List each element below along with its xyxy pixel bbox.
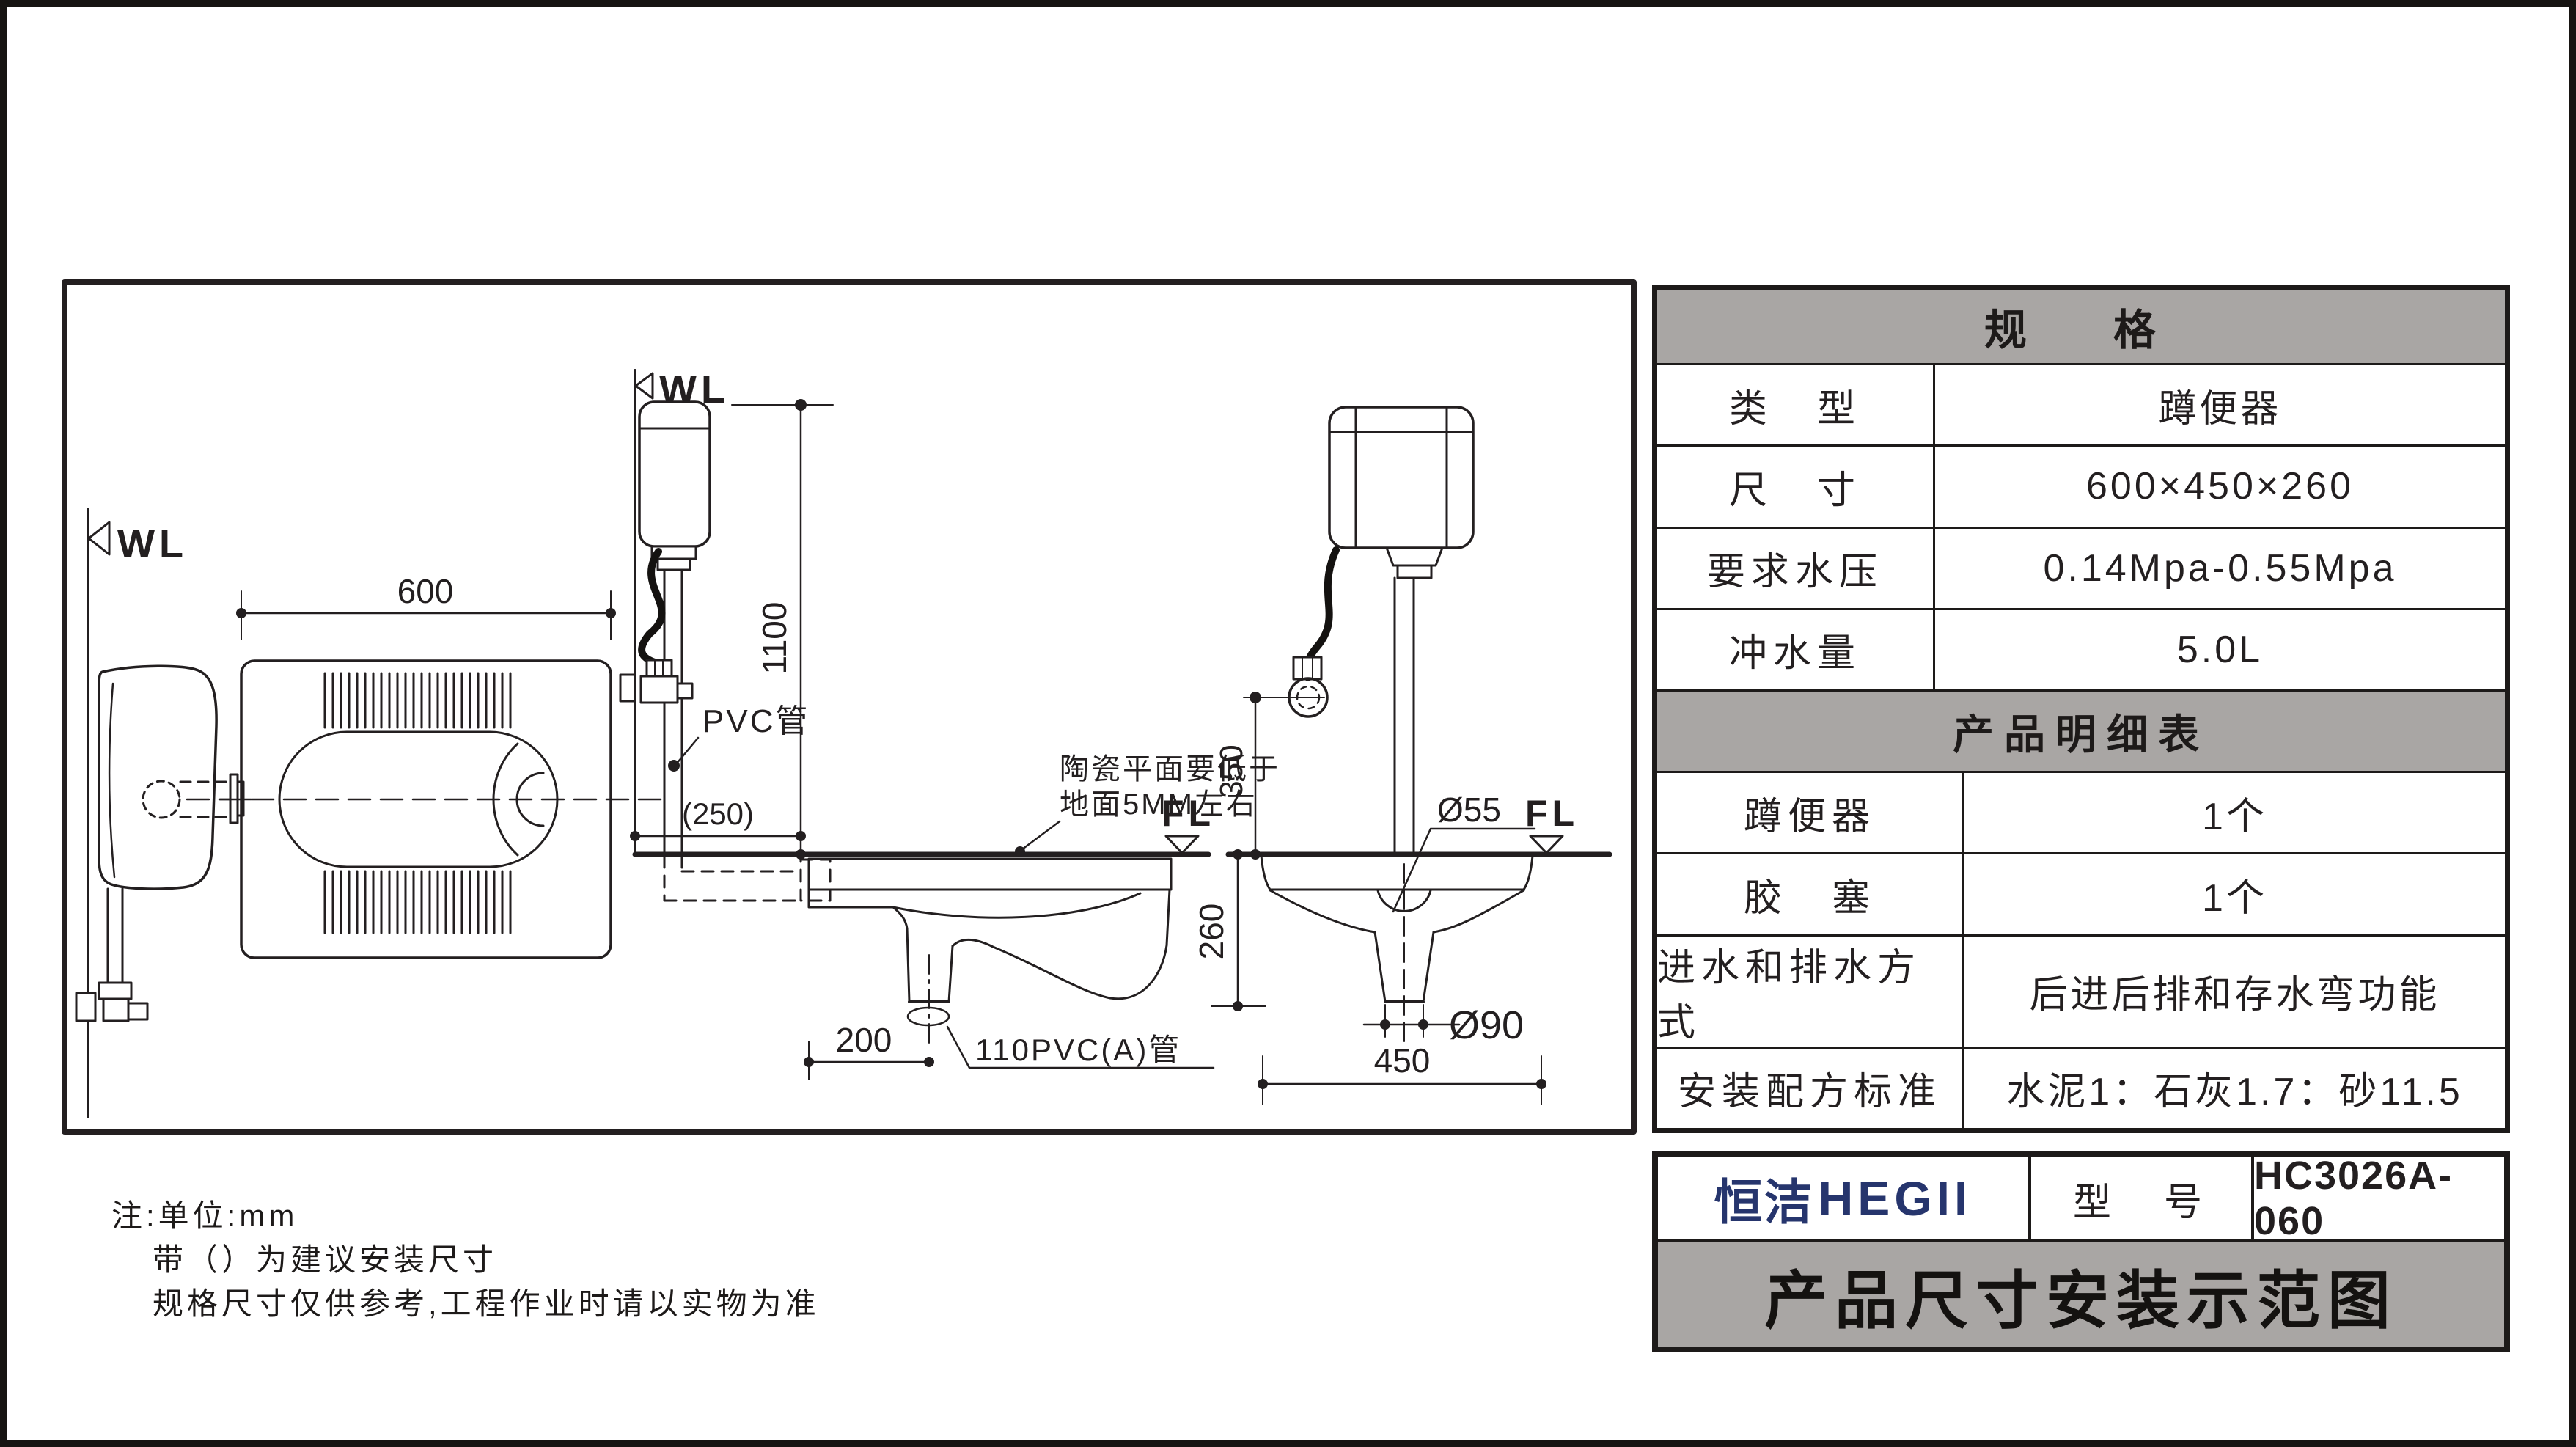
cistern-side-outline (639, 402, 710, 546)
plan-valve-nut (99, 983, 131, 999)
water-level-icon (636, 373, 653, 398)
drain-dashed-connector-box (801, 860, 830, 901)
dim-600-text: 600 (397, 572, 454, 610)
side-wl-label: WL (659, 367, 730, 411)
dim-1100-text: 1100 (755, 602, 793, 675)
dim-250-text: (250) (682, 796, 754, 831)
flush-pipe-side (664, 570, 682, 854)
table-row: 类 型 蹲便器 (1657, 363, 2505, 444)
side-fl-label: FL (1162, 793, 1215, 834)
brand-logo-en: HEGII (1819, 1171, 1973, 1226)
spec-row-label: 冲水量 (1657, 610, 1935, 689)
flush-valve-front (1387, 548, 1442, 565)
flush-pipe-front (1395, 578, 1414, 854)
detail-row-label: 进水和排水方式 (1657, 937, 1964, 1047)
flush-valve-step2 (658, 559, 690, 570)
brand-logo: 恒洁HEGII (1658, 1157, 2031, 1239)
drain-dashed-elbow (664, 856, 801, 901)
dim-dot (1418, 1019, 1428, 1030)
brand-logo-cn: 恒洁 (1714, 1163, 1814, 1234)
dim-dot (236, 608, 246, 618)
plan-valve-outlet (128, 1003, 147, 1019)
dim-260-text: 260 (1192, 904, 1230, 960)
table-row: 蹲便器 1个 (1657, 771, 2505, 852)
dim-dot (795, 399, 807, 411)
note-line-3: 规格尺寸仅供参考,工程作业时请以实物为准 (111, 1282, 820, 1326)
dim-dot (606, 608, 616, 618)
installation-diagram-sheet: WL (0, 0, 2576, 1447)
pan-front-left-edge (1261, 856, 1270, 890)
plan-valve-wall-flange (76, 993, 95, 1021)
spec-row-value: 0.14Mpa-0.55Mpa (1935, 529, 2505, 608)
detail-row-label: 安装配方标准 (1657, 1049, 1964, 1128)
side-view: WL PVC管 (250) (620, 367, 1280, 1080)
dim-dot (924, 1057, 934, 1067)
cistern-plan-inner-line (109, 684, 114, 877)
pvc110-label: 110PVC(A)管 (975, 1033, 1181, 1067)
pan-front-underside-left (1270, 890, 1375, 932)
table-row: 冲水量 5.0L (1657, 608, 2505, 689)
plan-view: WL (76, 509, 664, 1117)
drawing-panel-border (65, 282, 1634, 1132)
table-row: 安装配方标准 水泥1：石灰1.7：砂11.5 (1657, 1047, 2505, 1128)
floor-level-icon (1530, 836, 1563, 853)
spec-row-label: 要求水压 (1657, 529, 1935, 608)
plan-wl-label: WL (117, 522, 188, 566)
pvc-pipe-leader (676, 738, 698, 764)
cistern-inlet-dashed-circle (143, 781, 180, 818)
leader-dot (668, 760, 680, 772)
sheet-title: 产品尺寸安装示范图 (1658, 1239, 2504, 1347)
pan-plan-outline (241, 661, 611, 958)
pan-front-underside-right (1434, 890, 1524, 932)
dim-dot (796, 849, 806, 860)
dim-dot (1258, 1079, 1268, 1089)
spec-row-value: 600×450×260 (1935, 447, 2505, 526)
valve-nut (647, 660, 672, 676)
floor-level-icon (1166, 836, 1198, 853)
cistern-front-outline (1329, 407, 1473, 548)
detail-row-label: 胶 塞 (1657, 854, 1964, 934)
cistern-front-panel-lines (1331, 409, 1472, 546)
pan-ribs-top (325, 673, 510, 728)
spec-table-title: 规 格 (1657, 290, 2505, 363)
spec-row-label: 尺 寸 (1657, 447, 1935, 526)
title-block: 恒洁HEGII 型 号 HC3026A-060 产品尺寸安装示范图 (1652, 1151, 2510, 1352)
pan-side-trap-left (893, 907, 909, 1002)
model-label: 型 号 (2031, 1157, 2254, 1239)
cistern-plan-outline (99, 666, 216, 889)
note-line-1: 注:单位:mm (111, 1194, 820, 1238)
dim-350-text: 350 (1214, 744, 1250, 798)
detail-row-value: 水泥1：石灰1.7：砂11.5 (1964, 1049, 2505, 1128)
table-row: 尺 寸 600×450×260 (1657, 444, 2505, 526)
water-level-icon (89, 522, 109, 554)
dim-dot (804, 1057, 814, 1067)
spec-row-label: 类 型 (1657, 365, 1935, 444)
ceramic-note-leader (1022, 821, 1060, 849)
pan-side-underside (953, 890, 1170, 999)
dia55-text: Ø55 (1437, 791, 1501, 829)
flush-valve-front-step (1398, 565, 1431, 578)
plan-valve-body (103, 999, 128, 1021)
spec-row-value: 5.0L (1935, 610, 2505, 689)
pan-side-rim (809, 859, 1171, 907)
valve-outlet (678, 684, 692, 698)
detail-table-title: 产品明细表 (1657, 689, 2505, 771)
pan-side-bowl-curve (893, 893, 1140, 917)
dia90-text: Ø90 (1449, 1003, 1524, 1047)
spec-table: 规 格 类 型 蹲便器 尺 寸 600×450×260 要求水压 0.14Mpa… (1652, 285, 2510, 1133)
pan-ribs-bottom (325, 871, 510, 933)
dim-dot (630, 831, 640, 841)
front-fl-label: FL (1525, 793, 1579, 834)
note-line-2: 带（）为建议安装尺寸 (111, 1238, 820, 1282)
dim-dot (1250, 692, 1261, 703)
pan-front-right-edge (1524, 856, 1533, 890)
dim-450-text: 450 (1374, 1041, 1431, 1080)
front-view: 350 260 FL Ø55 (1192, 407, 1610, 1105)
pvc-pipe-label: PVC管 (702, 703, 810, 739)
dim-dot (1380, 1019, 1390, 1030)
table-row: 进水和排水方式 后进后排和存水弯功能 (1657, 934, 2505, 1047)
spec-row-value: 蹲便器 (1935, 365, 2505, 444)
detail-row-value: 1个 (1964, 854, 2505, 934)
detail-row-value: 后进后排和存水弯功能 (1964, 937, 2505, 1047)
table-row: 胶 塞 1个 (1657, 852, 2505, 934)
leader-dot (1015, 846, 1025, 857)
dim-200-text: 200 (836, 1021, 892, 1059)
model-value: HC3026A-060 (2254, 1157, 2504, 1239)
valve-wall-flange (620, 675, 635, 701)
dim-dot (1536, 1079, 1546, 1089)
inlet-nut (1293, 657, 1321, 679)
table-row: 要求水压 0.14Mpa-0.55Mpa (1657, 527, 2505, 608)
detail-row-label: 蹲便器 (1657, 773, 1964, 852)
pan-side-trap-right (949, 946, 953, 1002)
notes: 注:单位:mm 带（）为建议安装尺寸 规格尺寸仅供参考,工程作业时请以实物为准 (111, 1194, 820, 1326)
plan-supply-pipe (108, 889, 122, 983)
detail-row-value: 1个 (1964, 773, 2505, 852)
valve-body (641, 676, 678, 703)
